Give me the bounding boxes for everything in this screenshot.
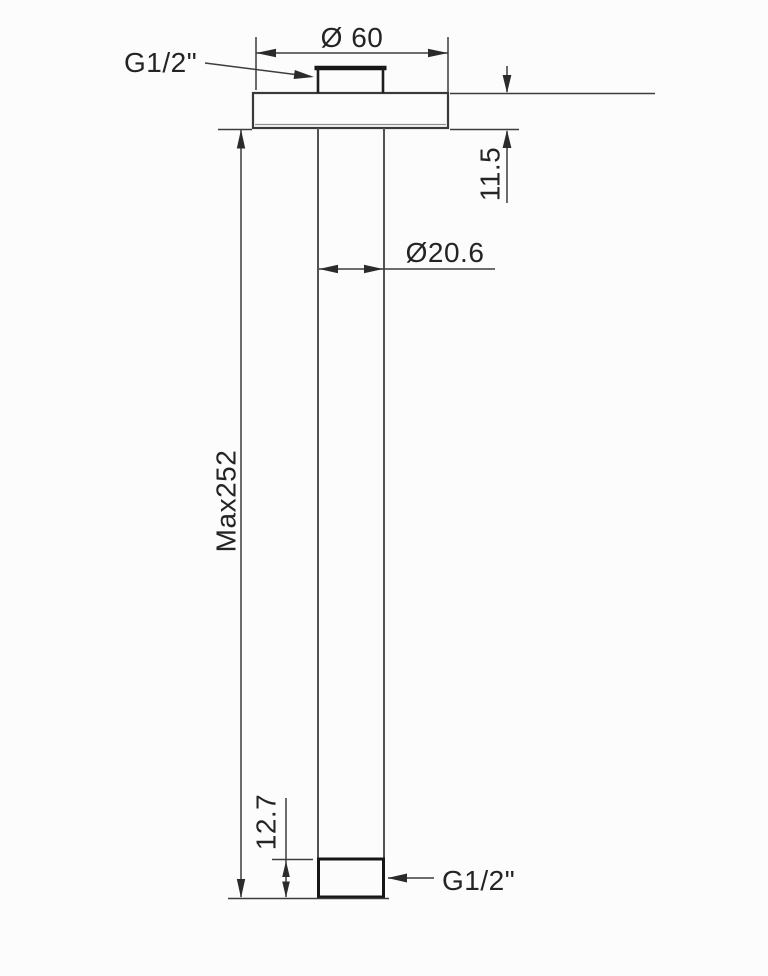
drawing-canvas: Ø 60 G1/2" 11.5 Ø20.6 [0, 0, 768, 976]
top-leader-arrow [294, 70, 314, 79]
dim252-label: Max252 [211, 450, 242, 553]
pipe-body [318, 128, 384, 859]
dim115-arrow-up [503, 130, 512, 148]
dim-pipe-diameter: Ø20.6 [319, 237, 495, 273]
dim-flange-diameter: Ø 60 [256, 22, 448, 92]
dim252-arrow-down [237, 879, 245, 898]
dim60-arrow-left [256, 49, 276, 57]
dim206-arrow-right [364, 265, 383, 273]
dim60-arrow-right [428, 49, 448, 57]
top-thread-stub [315, 67, 387, 93]
dim252-arrow-up [237, 130, 245, 149]
bottom-thread-outline [319, 859, 384, 897]
ceiling-flange [253, 93, 448, 128]
dim127-arrow-up [282, 861, 290, 877]
bottom-port-label: G1/2" [442, 865, 515, 896]
dim115-arrow-down [503, 75, 512, 93]
flange-outline [253, 93, 448, 128]
dim60-label: Ø 60 [321, 22, 384, 53]
dim206-label: Ø20.6 [406, 237, 485, 268]
dim115-label: 11.5 [475, 147, 506, 201]
bottom-thread [319, 859, 384, 897]
top-port-label: G1/2" [124, 47, 197, 78]
dim-flange-thickness: 11.5 [450, 66, 655, 203]
dim-max-length: Max252 [211, 130, 253, 899]
dim127-arrow-down [282, 882, 290, 898]
dim127-label: 12.7 [251, 794, 282, 851]
top-port-callout: G1/2" [124, 47, 314, 79]
bottom-leader-arrow [388, 874, 408, 883]
dimension-drawing: Ø 60 G1/2" 11.5 Ø20.6 [0, 0, 768, 976]
dim-bottom-thread-length: 12.7 [251, 794, 314, 898]
dim206-arrow-left [319, 265, 338, 273]
